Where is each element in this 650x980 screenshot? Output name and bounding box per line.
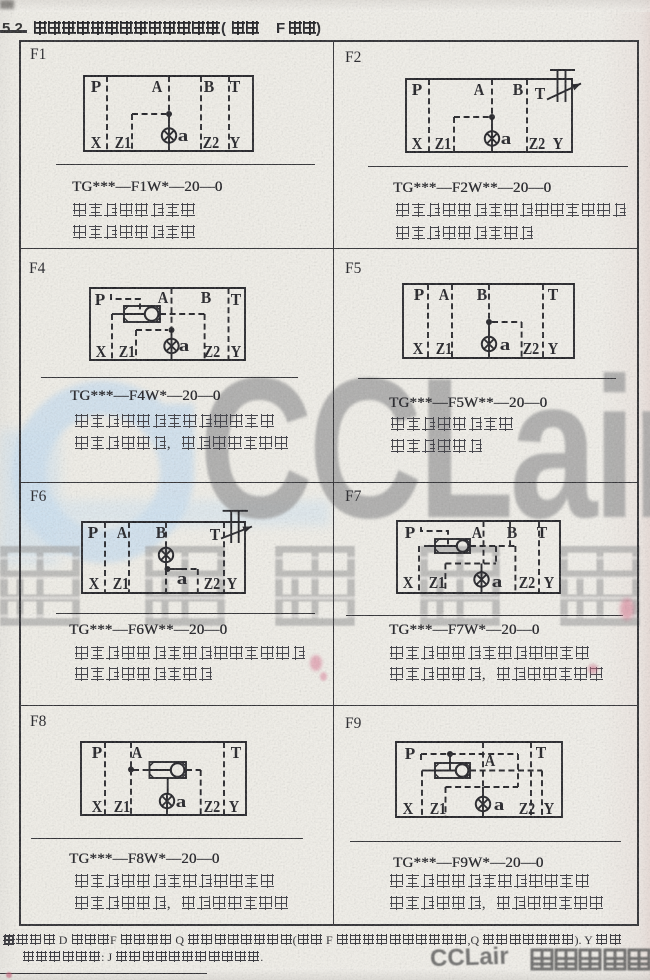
svg-text:X: X	[413, 339, 424, 358]
svg-text:Z1: Z1	[429, 573, 446, 592]
svg-text:X: X	[92, 797, 103, 816]
svg-text:Y: Y	[553, 134, 564, 153]
svg-text:A: A	[152, 77, 163, 96]
svg-text:A: A	[439, 285, 450, 304]
svg-text:A: A	[485, 751, 496, 770]
svg-text:Z2: Z2	[519, 573, 536, 592]
svg-text:P: P	[95, 290, 106, 309]
svg-text:a: a	[500, 335, 511, 354]
svg-text:X: X	[403, 799, 414, 818]
svg-text:B: B	[204, 77, 215, 96]
svg-text:B: B	[513, 80, 524, 99]
svg-text:Y: Y	[229, 797, 240, 816]
svg-text:B: B	[156, 523, 167, 542]
svg-text:P: P	[412, 80, 423, 99]
svg-text:P: P	[405, 744, 416, 763]
svg-text:B: B	[201, 288, 212, 307]
svg-text:a: a	[492, 572, 503, 591]
svg-text:Z2: Z2	[519, 799, 536, 818]
svg-text:Z1: Z1	[436, 339, 453, 358]
svg-text:X: X	[403, 573, 414, 592]
svg-text:Z1: Z1	[119, 342, 136, 361]
svg-text:P: P	[91, 77, 102, 96]
svg-text:Y: Y	[230, 133, 241, 152]
svg-text:T: T	[231, 290, 242, 309]
svg-text:T: T	[537, 523, 548, 542]
svg-text:A: A	[158, 288, 169, 307]
svg-text:Y: Y	[227, 574, 238, 593]
svg-text:Z1: Z1	[115, 133, 132, 152]
svg-text:P: P	[414, 285, 425, 304]
svg-text:A: A	[117, 523, 128, 542]
svg-text:X: X	[412, 134, 423, 153]
svg-text:X: X	[89, 574, 100, 593]
svg-text:Z2: Z2	[204, 342, 221, 361]
svg-text:a: a	[178, 126, 189, 145]
svg-text:a: a	[176, 792, 187, 811]
svg-text:Z1: Z1	[113, 574, 130, 593]
svg-text:Z1: Z1	[114, 797, 131, 816]
svg-text:X: X	[91, 133, 102, 152]
svg-text:A: A	[472, 523, 483, 542]
svg-text:Y: Y	[544, 799, 555, 818]
svg-text:a: a	[501, 129, 512, 148]
svg-text:T: T	[548, 285, 559, 304]
svg-text:T: T	[210, 525, 221, 544]
svg-text:Z2: Z2	[523, 339, 540, 358]
svg-text:a: a	[179, 336, 190, 355]
svg-text:Y: Y	[544, 573, 555, 592]
svg-text:a: a	[494, 795, 505, 814]
svg-text:T: T	[536, 743, 547, 762]
svg-text:Z1: Z1	[430, 799, 447, 818]
svg-text:Z2: Z2	[529, 134, 546, 153]
svg-text:Y: Y	[231, 342, 242, 361]
svg-text:T: T	[230, 77, 241, 96]
svg-text:Z2: Z2	[204, 574, 221, 593]
svg-text:A: A	[132, 743, 143, 762]
svg-text:T: T	[231, 743, 242, 762]
svg-text:Y: Y	[548, 339, 559, 358]
svg-text:Z1: Z1	[435, 134, 452, 153]
svg-text:B: B	[477, 285, 488, 304]
svg-text:a: a	[177, 569, 188, 588]
svg-text:T: T	[535, 84, 546, 103]
svg-text:Z2: Z2	[204, 797, 221, 816]
svg-text:Z2: Z2	[203, 133, 220, 152]
svg-text:B: B	[507, 523, 518, 542]
svg-text:X: X	[96, 342, 107, 361]
svg-text:A: A	[474, 80, 485, 99]
svg-text:P: P	[92, 743, 103, 762]
svg-text:P: P	[88, 523, 99, 542]
svg-text:P: P	[405, 523, 416, 542]
